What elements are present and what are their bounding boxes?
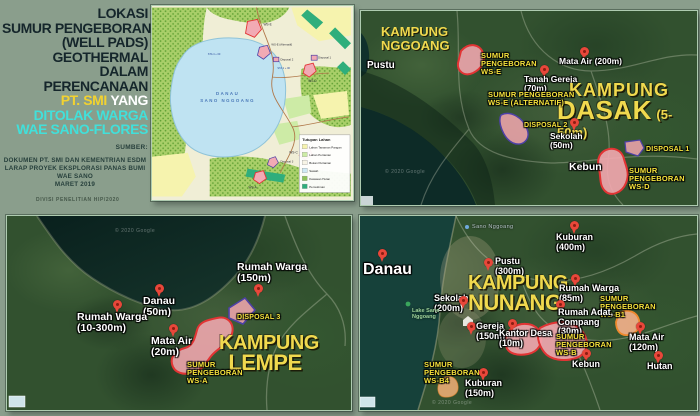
map-pin-kebun bbox=[582, 349, 591, 358]
legend-swatch bbox=[302, 184, 307, 188]
source-line: DOKUMEN PT. SMI DAN KEMENTRIAN ESDM bbox=[2, 157, 148, 165]
lempe-overlay bbox=[7, 216, 351, 410]
map-panel-kampung-nunang: Danau Kuburan (400m) Pustu (300m) KAMPUN… bbox=[359, 215, 698, 411]
map-pin-gereja bbox=[467, 322, 476, 331]
site-label-ws-c: WS-C bbox=[289, 151, 298, 155]
label-kampung-nggoang: KAMPUNG NGGOANG bbox=[381, 25, 450, 52]
title-line-cyan: DITOLAK WARGA bbox=[2, 108, 148, 123]
map-pin-kuburan-150 bbox=[479, 368, 488, 377]
poi-lake-sano-nggoang: Lake Sano Nggoang bbox=[412, 308, 440, 320]
google-watermark: © 2020 Google bbox=[385, 169, 425, 175]
legend-swatch bbox=[302, 152, 307, 156]
site-label-disposal-1: Disposal 1 bbox=[318, 56, 331, 60]
legend-label: Lahan Pertanian bbox=[309, 153, 331, 157]
sta-label: STA 1 + 00 bbox=[277, 66, 290, 70]
site-label-ws-e-alt: WS-E (Alternatif) bbox=[271, 42, 292, 46]
map-thumbnail bbox=[9, 396, 25, 407]
wellpad-ws-d-polygon bbox=[598, 149, 628, 194]
title-line-mixed: PT. SMI YANG bbox=[2, 93, 148, 108]
label-kuburan-400m: Kuburan (400m) bbox=[556, 233, 593, 252]
title-line: (WELL PADS) bbox=[2, 35, 148, 50]
site-label-ws-a: WS-A bbox=[249, 186, 258, 190]
map-panel-kampung-dasak: KAMPUNG NGGOANG Pustu SUMUR PENGEBORAN W… bbox=[360, 10, 698, 206]
legend-title: Tutupan Lahan bbox=[302, 137, 331, 142]
label-danau: Danau bbox=[363, 262, 412, 278]
map-thumbnail bbox=[360, 397, 375, 407]
pad-disposal-1 bbox=[311, 55, 317, 60]
title-line: DALAM bbox=[2, 64, 148, 79]
map-pin-disposal-2 bbox=[570, 118, 579, 127]
source-label: SUMBER: bbox=[2, 144, 148, 151]
map-thumbnail bbox=[361, 196, 373, 205]
map-pin-rumah-warga bbox=[571, 274, 580, 283]
road bbox=[266, 216, 345, 410]
google-watermark: © 2020 Google bbox=[115, 228, 155, 234]
place-icon bbox=[465, 225, 469, 229]
pad-disposal-2 bbox=[273, 57, 278, 61]
source-line: MARET 2019 bbox=[2, 181, 148, 189]
label-hutan: Hutan bbox=[647, 362, 673, 372]
title-line: PERENCANAAN bbox=[2, 79, 148, 94]
label-mata-air-20m: Mata Air (20m) bbox=[151, 336, 192, 358]
map-pin-rumah-warga-150 bbox=[254, 284, 263, 293]
map-pin-kantor-desa bbox=[508, 319, 517, 328]
source-line: LARAP PROYEK EKSPLORASI PANAS BUMI WAE S… bbox=[2, 165, 148, 181]
legend-swatch bbox=[302, 160, 307, 164]
title-highlight-rest: YANG bbox=[110, 92, 148, 108]
title-nunang: NUNANG bbox=[468, 293, 556, 313]
label-disposal-1: DISPOSAL 1 bbox=[646, 146, 690, 154]
map-pin-pustu bbox=[484, 258, 493, 267]
map-pin-danau bbox=[155, 284, 164, 293]
credit-line: DIVISI PENELITIAN HIP/2020 bbox=[36, 197, 119, 203]
title-line: SUMUR PENGEBORAN bbox=[2, 21, 148, 36]
title-line: LOKASI bbox=[2, 6, 148, 21]
site-label-ws-e: WS-E bbox=[263, 22, 271, 26]
legend-swatch bbox=[302, 176, 307, 180]
label-kebun: Kebun bbox=[572, 360, 600, 370]
map-pin-sekolah bbox=[459, 296, 468, 305]
label-kantor-desa-10m: Kantor Desa (10m) bbox=[499, 329, 552, 348]
legend-label: Pemukiman bbox=[309, 185, 325, 189]
map-pin-kuburan-400 bbox=[570, 221, 579, 230]
title-line: GEOTHERMAL bbox=[2, 50, 148, 65]
label-mata-air-200m: Mata Air (200m) bbox=[559, 57, 622, 66]
label-sumur-ws-e-alternatif: SUMUR PENGEBORAN WS-E (ALTERNATIF) bbox=[488, 91, 575, 107]
google-watermark: © 2020 Google bbox=[432, 400, 472, 406]
title-highlight: PT. SMI bbox=[61, 92, 107, 108]
map-pin-hutan bbox=[654, 351, 663, 360]
site-label-ws-d: WS-D bbox=[308, 79, 317, 83]
site-label-disposal-2: Disposal 2 bbox=[280, 58, 293, 62]
label-rumah-warga-150m: Rumah Warga (150m) bbox=[237, 262, 307, 284]
poster-root: LOKASI SUMUR PENGEBORAN (WELL PADS) GEOT… bbox=[0, 0, 700, 416]
map-pin-tanah-gereja bbox=[540, 65, 549, 74]
park-poi-icon bbox=[406, 302, 411, 307]
legend-swatch bbox=[302, 168, 307, 172]
legend-label: Kawasan Hutan bbox=[309, 177, 330, 181]
landuse-map: DANAU SANO NGGOANG WS-E WS-E (Alternatif… bbox=[152, 6, 351, 198]
legend-swatch bbox=[302, 144, 307, 148]
label-disposal-2: DISPOSAL 2 bbox=[524, 122, 568, 130]
label-sumur-ws-a: SUMUR PENGEBORAN WS-A bbox=[187, 361, 243, 385]
landuse-map-panel: DANAU SANO NGGOANG WS-E WS-E (Alternatif… bbox=[151, 5, 354, 201]
map-pin-mata-air bbox=[169, 324, 178, 333]
legend-label: Sawah bbox=[309, 169, 318, 173]
label-sumur-ws-d: SUMUR PENGEBORAN WS-D bbox=[629, 167, 685, 191]
disposal-1-polygon bbox=[625, 140, 644, 156]
lake-label: SANO NGGOANG bbox=[200, 98, 255, 103]
sta-label: STA 4 + 00 bbox=[208, 52, 221, 56]
label-kuburan-150m: Kuburan (150m) bbox=[465, 379, 502, 398]
label-disposal-3: DISPOSAL 3 bbox=[237, 314, 281, 322]
label-mata-air-120m: Mata Air (120m) bbox=[629, 333, 664, 352]
title-line-cyan: WAE SANO-FLORES bbox=[2, 122, 148, 137]
map-pin-mata-air bbox=[580, 47, 589, 56]
map-panel-kampung-lempe: Rumah Warga (150m) Danau (50m) Rumah War… bbox=[6, 215, 352, 411]
wellpad-ws-e-polygon bbox=[458, 45, 484, 74]
title-kampung-nunang: KAMPUNG NUNANG bbox=[468, 274, 556, 313]
label-sumur-ws-e: SUMUR PENGEBORAN WS-E bbox=[481, 52, 537, 76]
label-sekolah-50m: Sekolah (50m) bbox=[550, 132, 583, 150]
label-kebun: Kebun bbox=[569, 163, 602, 172]
legend-label: Bukan Pertanian bbox=[309, 161, 331, 165]
site-label-disposal-3: Disposal 3 bbox=[280, 160, 293, 164]
map-pin-mata-air bbox=[636, 322, 645, 331]
label-pustu: Pustu bbox=[367, 61, 395, 70]
place-label-sano-nggoang: Sano Nggoang bbox=[472, 224, 514, 230]
legend-label: Lahan Tanaman Pangan bbox=[309, 145, 342, 149]
label-rumah-warga-10-300m: Rumah Warga (10-300m) bbox=[77, 312, 147, 334]
map-pin-rumah-warga-10-300 bbox=[113, 300, 122, 309]
landuse-legend: Tutupan Lahan Lahan Tanaman Pangan Lahan… bbox=[299, 135, 350, 193]
title-block: LOKASI SUMUR PENGEBORAN (WELL PADS) GEOT… bbox=[2, 6, 148, 189]
source-lines: DOKUMEN PT. SMI DAN KEMENTRIAN ESDM LARA… bbox=[2, 157, 148, 189]
label-danau-50m: Danau (50m) bbox=[143, 296, 175, 318]
map-pin-danau bbox=[378, 249, 387, 258]
lake-label: DANAU bbox=[216, 91, 239, 96]
